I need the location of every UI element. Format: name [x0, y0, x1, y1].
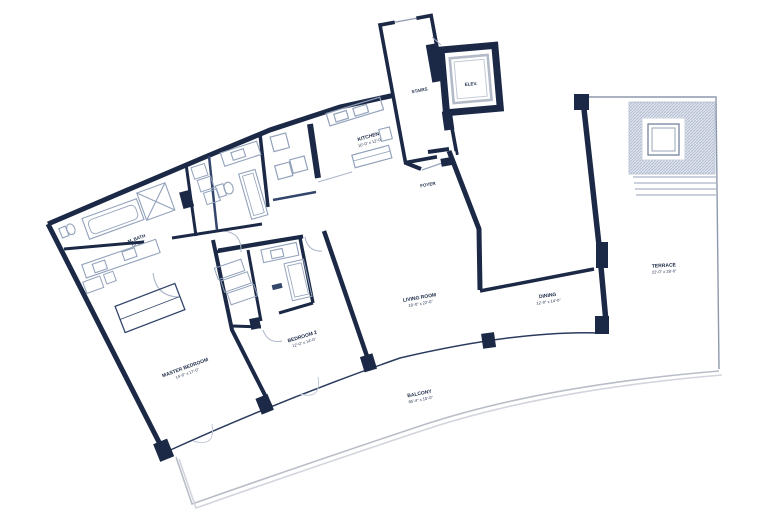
svg-text:FOYER: FOYER	[420, 181, 437, 189]
svg-text:22'-0" x 28'-0": 22'-0" x 28'-0"	[652, 268, 677, 274]
